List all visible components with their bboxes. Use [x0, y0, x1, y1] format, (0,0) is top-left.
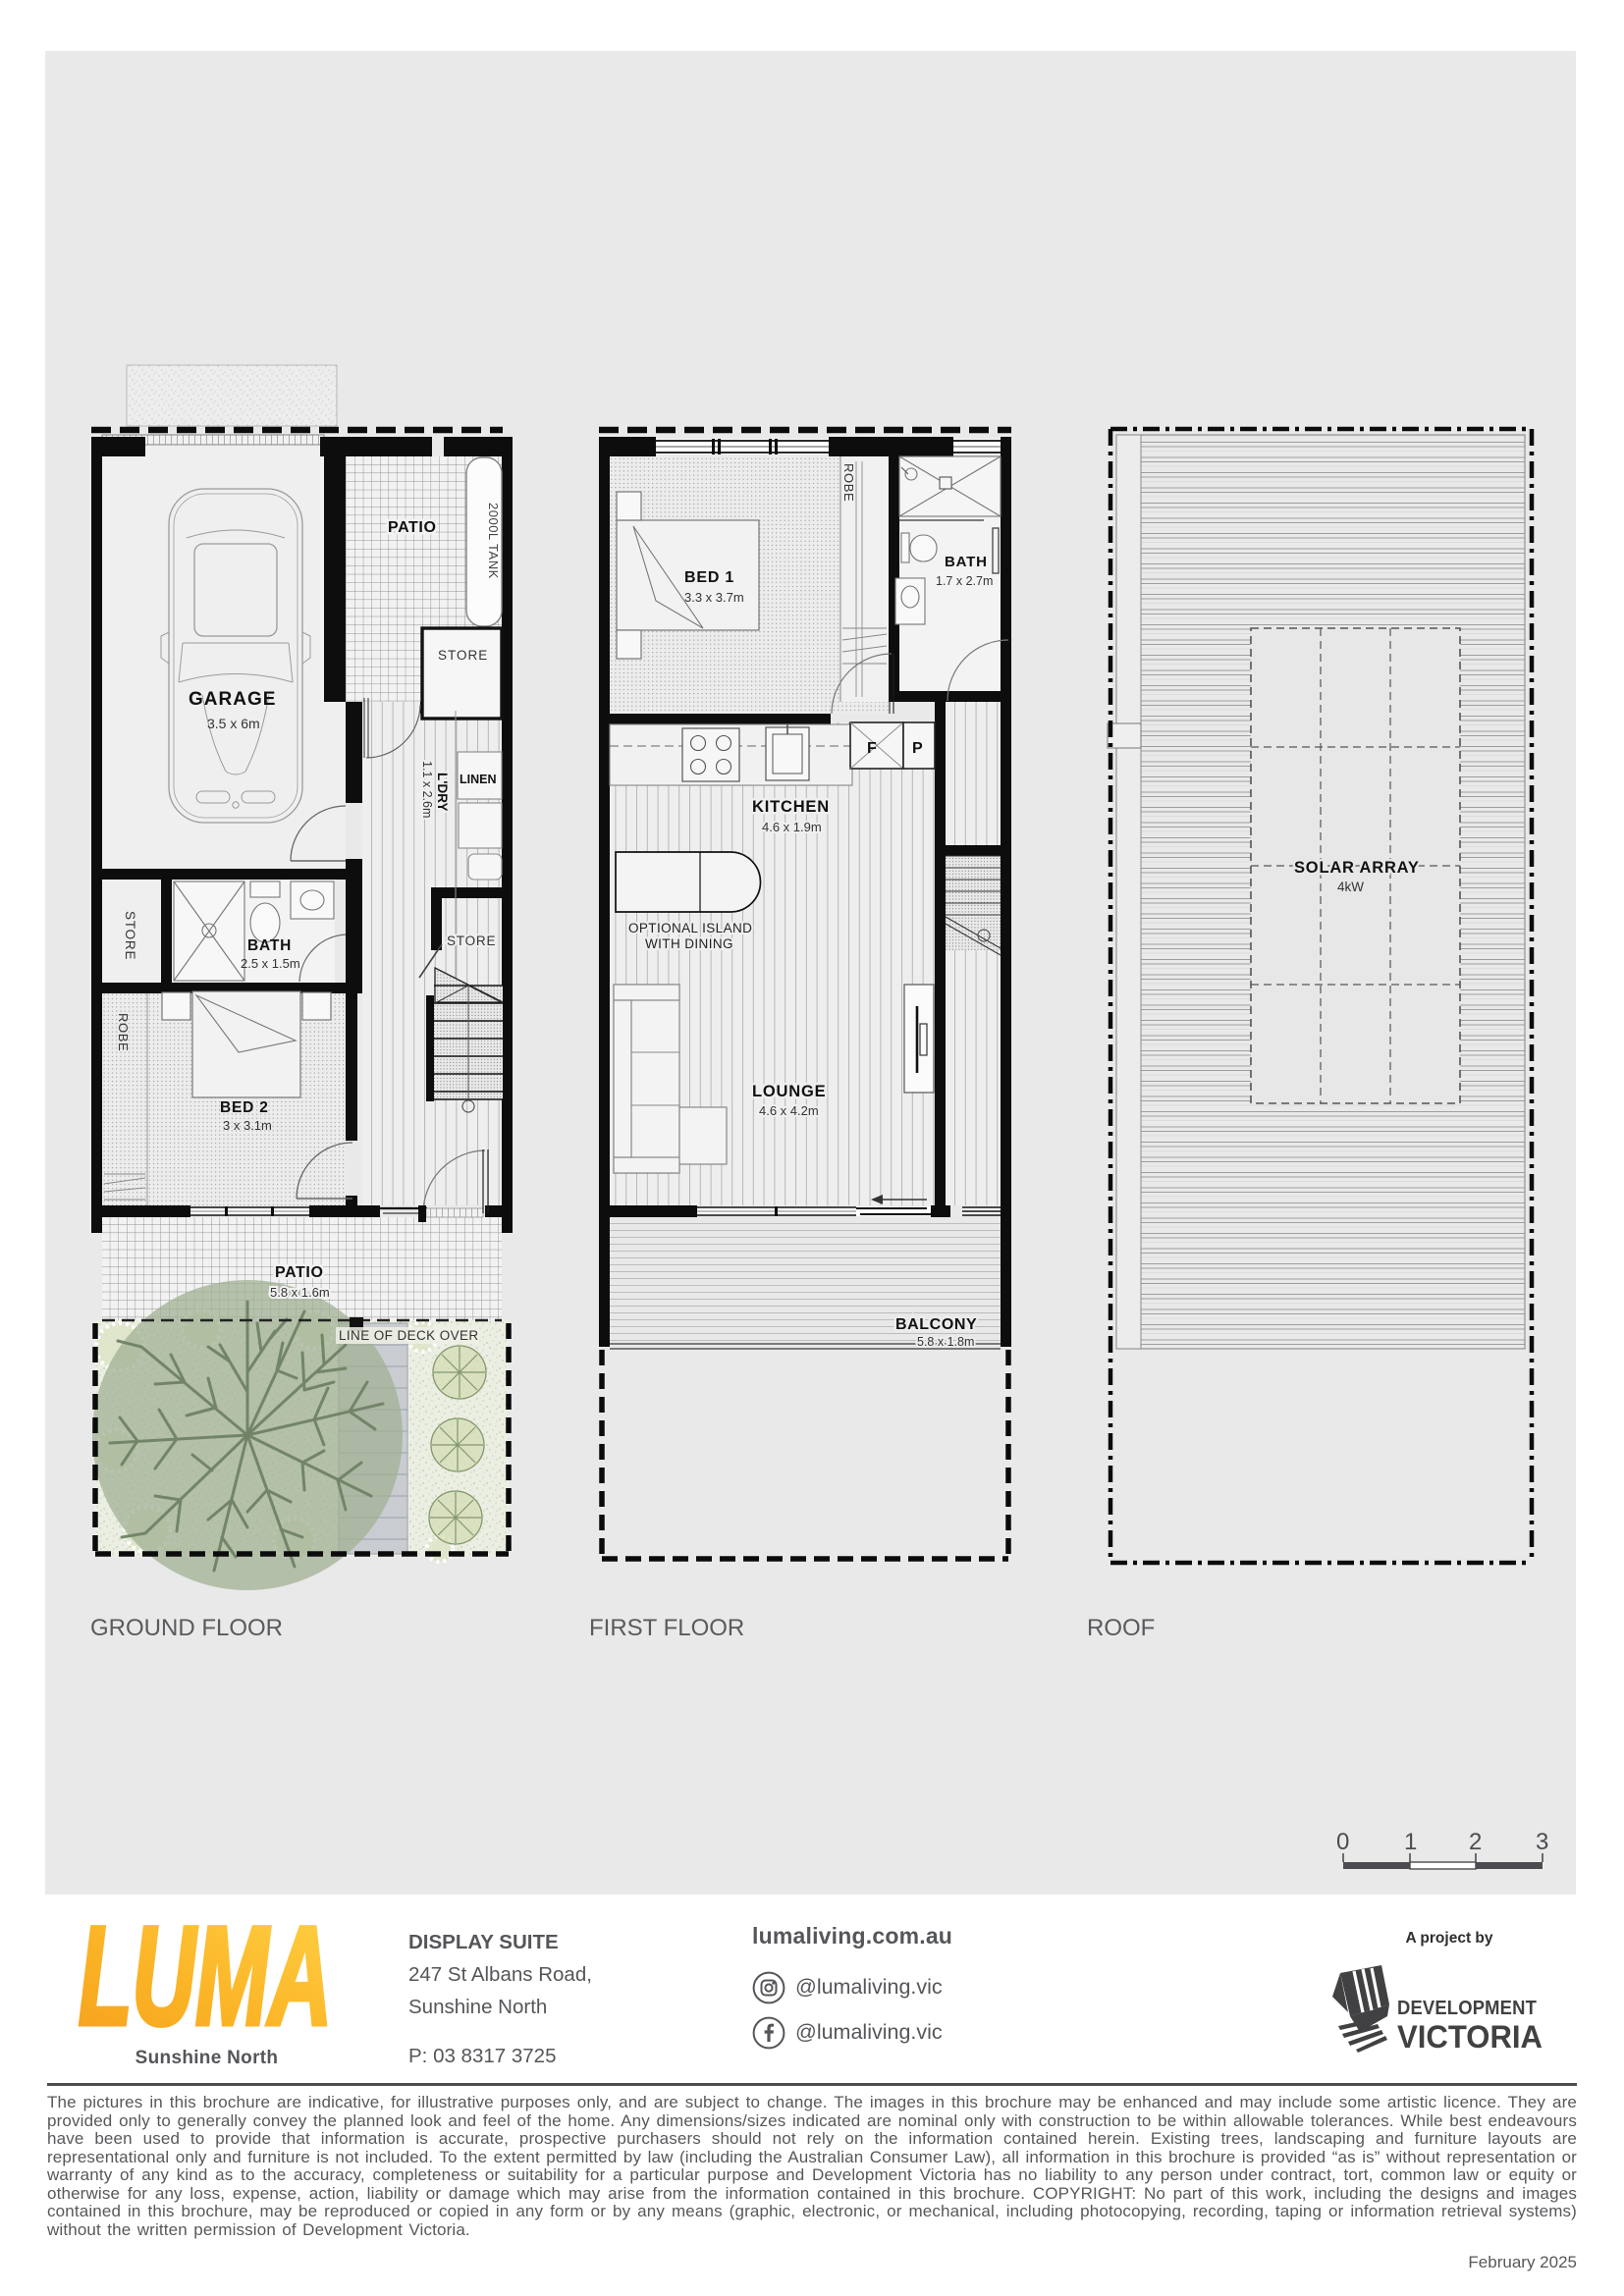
svg-text:ROBE: ROBE	[841, 463, 856, 502]
svg-text:F: F	[867, 740, 877, 757]
svg-text:ROBE: ROBE	[116, 1013, 131, 1051]
svg-text:BATH: BATH	[247, 937, 292, 954]
svg-text:0: 0	[1336, 1829, 1349, 1855]
svg-text:BED 2: BED 2	[220, 1099, 269, 1116]
svg-text:ROOF: ROOF	[1087, 1615, 1155, 1641]
svg-text:VICTORIA: VICTORIA	[1397, 2019, 1543, 2055]
svg-text:2: 2	[1469, 1829, 1482, 1855]
svg-text:STORE: STORE	[447, 934, 496, 948]
svg-text:4.6 x 1.9m: 4.6 x 1.9m	[762, 820, 822, 834]
svg-text:3 x 3.1m: 3 x 3.1m	[223, 1118, 272, 1133]
svg-text:1.7 x 2.7m: 1.7 x 2.7m	[936, 574, 993, 588]
svg-text:WITH DINING: WITH DINING	[645, 936, 733, 951]
svg-text:BED 1: BED 1	[684, 569, 734, 586]
svg-text:1.1 x 2.6m: 1.1 x 2.6m	[420, 761, 434, 818]
svg-text:4.6 x 4.2m: 4.6 x 4.2m	[759, 1103, 819, 1118]
svg-text:BALCONY: BALCONY	[895, 1316, 977, 1333]
svg-text:KITCHEN: KITCHEN	[752, 798, 830, 816]
svg-text:BATH: BATH	[945, 554, 988, 570]
svg-text:PATIO: PATIO	[388, 519, 437, 536]
svg-text:PATIO: PATIO	[275, 1264, 324, 1281]
svg-text:GARAGE: GARAGE	[189, 689, 276, 710]
svg-text:5.8 x 1.8m: 5.8 x 1.8m	[917, 1335, 974, 1349]
svg-text:5.8 x 1.6m: 5.8 x 1.6m	[270, 1285, 330, 1300]
svg-text:LOUNGE: LOUNGE	[752, 1083, 826, 1100]
svg-text:2000L TANK: 2000L TANK	[486, 503, 501, 579]
svg-text:P: P	[912, 740, 923, 757]
svg-text:FIRST FLOOR: FIRST FLOOR	[589, 1615, 744, 1641]
svg-text:L'DRY: L'DRY	[435, 773, 450, 811]
svg-text:DEVELOPMENT: DEVELOPMENT	[1397, 1998, 1537, 2019]
svg-text:LINE OF DECK OVER: LINE OF DECK OVER	[339, 1328, 479, 1343]
svg-text:SOLAR ARRAY: SOLAR ARRAY	[1294, 859, 1420, 877]
svg-text:GROUND FLOOR: GROUND FLOOR	[90, 1615, 283, 1641]
svg-text:3.3 x 3.7m: 3.3 x 3.7m	[684, 590, 744, 605]
svg-text:4kW: 4kW	[1337, 880, 1364, 894]
svg-text:STORE: STORE	[123, 911, 137, 960]
svg-text:STORE: STORE	[438, 648, 488, 663]
svg-text:2.5 x 1.5m: 2.5 x 1.5m	[241, 956, 300, 971]
svg-text:1: 1	[1404, 1829, 1417, 1855]
svg-text:OPTIONAL ISLAND: OPTIONAL ISLAND	[628, 921, 752, 935]
svg-text:LINEN: LINEN	[460, 773, 497, 786]
svg-text:3: 3	[1536, 1829, 1548, 1855]
svg-text:LUMA: LUMA	[79, 1920, 332, 2030]
svg-text:3.5 x 6m: 3.5 x 6m	[207, 716, 260, 731]
